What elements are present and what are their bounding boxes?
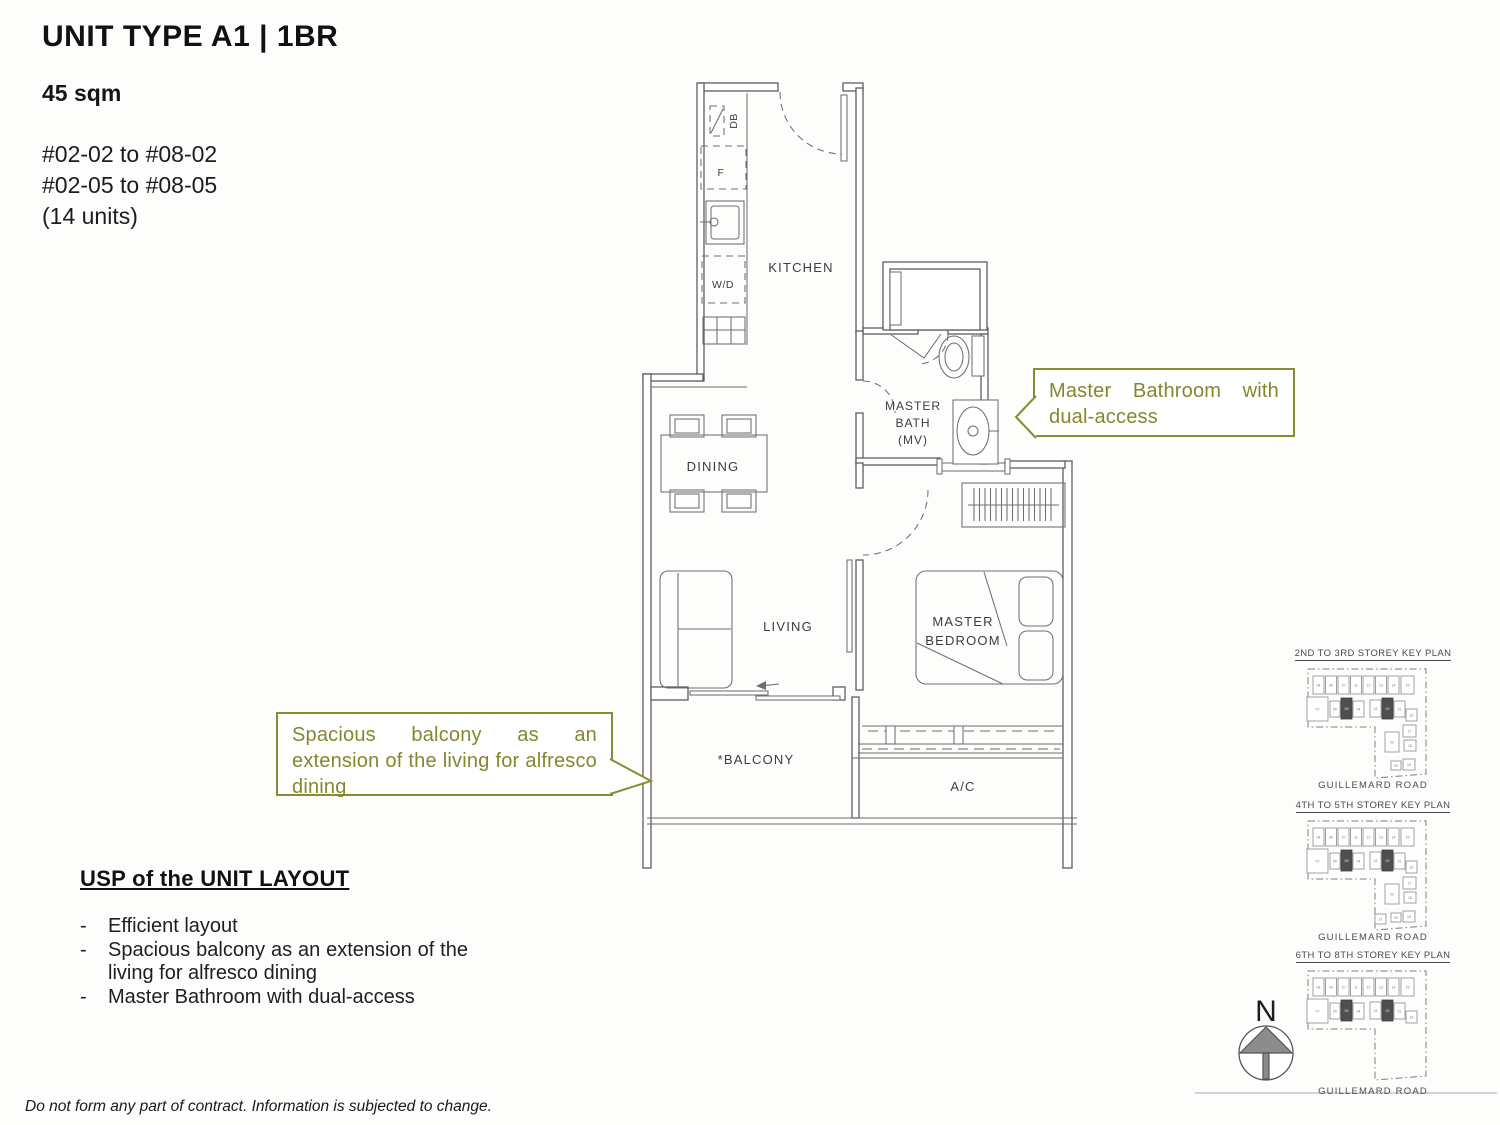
keyplan-unit-number: 14 bbox=[1392, 683, 1396, 687]
ac-label: A/C bbox=[950, 779, 975, 794]
keyplan-unit-number: 03 bbox=[1374, 1009, 1378, 1013]
page-title: UNIT TYPE A1 | 1BR bbox=[42, 20, 338, 54]
keyplan-unit-number: 05 bbox=[1345, 707, 1349, 711]
fridge-label: F bbox=[718, 167, 725, 179]
keyplan-map: 0809101112131415070605040302011617182220… bbox=[1293, 664, 1453, 779]
db-label: DB bbox=[728, 113, 740, 129]
keyplan-unit-number: 08 bbox=[1317, 835, 1321, 839]
usp-item-text: Master Bathroom with dual-access bbox=[108, 986, 468, 1009]
sliding-door-icon bbox=[690, 681, 840, 700]
keyplan-unit-number: 16 bbox=[1410, 1015, 1414, 1019]
keyplan-unit-number: 06 bbox=[1333, 859, 1337, 863]
sofa-icon bbox=[660, 571, 732, 688]
usp-item: - Efficient layout bbox=[80, 915, 480, 938]
keyplan-unit-number: 09 bbox=[1329, 835, 1333, 839]
keyplan-unit-number: 16 bbox=[1410, 713, 1414, 717]
callout-pointer-left-icon bbox=[1013, 395, 1037, 439]
keyplan-unit-number: 19 bbox=[1407, 763, 1411, 767]
keyplan-unit-number: 02 bbox=[1386, 1009, 1390, 1013]
keyplan-4th-5th-storey: 4TH TO 5TH STOREY KEY PLAN 0809101112131… bbox=[1273, 795, 1473, 943]
keyplan-unit-number: 06 bbox=[1333, 707, 1337, 711]
keyplan-unit-number: 12 bbox=[1367, 985, 1371, 989]
keyplan-2nd-3rd-storey: 2ND TO 3RD STOREY KEY PLAN 0809101112131… bbox=[1273, 643, 1473, 791]
keyplan-unit-number: 17 bbox=[1408, 881, 1412, 885]
keyplan-unit-number: 03 bbox=[1374, 707, 1378, 711]
keyplan-unit-number: 12 bbox=[1367, 835, 1371, 839]
living-label: LIVING bbox=[763, 619, 813, 634]
keyplan-unit-number: 04 bbox=[1357, 859, 1361, 863]
keyplan-unit-number: 10 bbox=[1342, 683, 1346, 687]
road-label: GUILLEMARD ROAD bbox=[1273, 1086, 1473, 1097]
keyplan-unit-number: 13 bbox=[1379, 835, 1383, 839]
slide-page: KITCHEN DINING LIVING *BALCONY A/C MASTE… bbox=[0, 0, 1500, 1125]
callout-master-bathroom: Master Bathroom with dual-access bbox=[1033, 368, 1295, 437]
keyplan-unit-number: 02 bbox=[1386, 859, 1390, 863]
master-bedroom-label-1: MASTER bbox=[932, 614, 993, 629]
usp-item: - Spacious balcony as an extension of th… bbox=[80, 939, 480, 985]
keyplan-unit-number: 11 bbox=[1354, 835, 1358, 839]
keyplan-unit-number: 14 bbox=[1392, 835, 1396, 839]
keyplan-unit-number: 16 bbox=[1410, 865, 1414, 869]
keyplan-unit-number: 04 bbox=[1357, 707, 1361, 711]
stack-line: (14 units) bbox=[42, 201, 217, 232]
keyplan-unit-number: 05 bbox=[1345, 859, 1349, 863]
keyplan-unit-number: 04 bbox=[1357, 1009, 1361, 1013]
unit-stack-list: #02-02 to #08-02 #02-05 to #08-05 (14 un… bbox=[42, 139, 217, 232]
washer-dryer-label: W/D bbox=[712, 279, 734, 291]
keyplan-unit-number: 01 bbox=[1398, 1009, 1402, 1013]
keyplan-unit-number: 01 bbox=[1398, 707, 1402, 711]
keyplan-unit-number: 14 bbox=[1392, 985, 1396, 989]
keyplan-map: 0809101112131415070605040302011617182221… bbox=[1293, 816, 1453, 931]
keyplan-unit-number: 15 bbox=[1406, 835, 1410, 839]
usp-heading: USP of the UNIT LAYOUT bbox=[80, 866, 349, 892]
keyplan-unit-number: 21 bbox=[1379, 917, 1383, 921]
road-label: GUILLEMARD ROAD bbox=[1273, 932, 1473, 943]
toilet-icon bbox=[939, 336, 984, 378]
keyplan-unit-number: 18 bbox=[1408, 744, 1412, 748]
keyplan-unit-number: 15 bbox=[1406, 683, 1410, 687]
bullet-dash: - bbox=[80, 986, 108, 1009]
keyplan-unit-number: 11 bbox=[1354, 985, 1358, 989]
master-bath-label-2: BATH bbox=[895, 416, 930, 430]
keyplan-unit-number: 11 bbox=[1354, 683, 1358, 687]
keyplan-unit-number: 07 bbox=[1316, 859, 1320, 863]
keyplan-unit-number: 02 bbox=[1386, 707, 1390, 711]
master-bedroom-label-2: BEDROOM bbox=[925, 633, 1001, 648]
keyplan-unit-number: 22 bbox=[1390, 740, 1394, 744]
keyplan-unit-number: 12 bbox=[1367, 683, 1371, 687]
keyplan-unit-number: 20 bbox=[1394, 764, 1398, 768]
keyplan-unit-number: 18 bbox=[1408, 896, 1412, 900]
bullet-dash: - bbox=[80, 915, 108, 938]
keyplan-unit-number: 07 bbox=[1316, 707, 1320, 711]
unit-area: 45 sqm bbox=[42, 80, 121, 107]
keyplan-6th-8th-storey: 6TH TO 8TH STOREY KEY PLAN 0809101112131… bbox=[1273, 945, 1473, 1097]
usp-list: - Efficient layout - Spacious balcony as… bbox=[80, 915, 480, 1010]
keyplan-unit-number: 20 bbox=[1394, 916, 1398, 920]
keyplan-unit-number: 09 bbox=[1329, 683, 1333, 687]
keyplan-title: 4TH TO 5TH STOREY KEY PLAN bbox=[1296, 800, 1451, 813]
keyplan-unit-number: 07 bbox=[1316, 1009, 1320, 1013]
keyplan-unit-number: 13 bbox=[1379, 985, 1383, 989]
keyplan-unit-number: 05 bbox=[1345, 1009, 1349, 1013]
dining-label: DINING bbox=[687, 459, 740, 474]
keyplan-unit-number: 01 bbox=[1398, 859, 1402, 863]
road-label: GUILLEMARD ROAD bbox=[1273, 780, 1473, 791]
keyplan-unit-number: 10 bbox=[1342, 985, 1346, 989]
disclaimer-text: Do not form any part of contract. Inform… bbox=[25, 1098, 492, 1116]
keyplan-unit-number: 17 bbox=[1408, 729, 1412, 733]
keyplan-unit-number: 08 bbox=[1317, 683, 1321, 687]
keyplan-unit-number: 06 bbox=[1333, 1009, 1337, 1013]
keyplan-unit-number: 03 bbox=[1374, 859, 1378, 863]
keyplan-unit-number: 22 bbox=[1390, 892, 1394, 896]
stack-line: #02-05 to #08-05 bbox=[42, 170, 217, 201]
keyplan-title: 2ND TO 3RD STOREY KEY PLAN bbox=[1295, 648, 1452, 661]
keyplan-unit-number: 10 bbox=[1342, 835, 1346, 839]
keyplan-title: 6TH TO 8TH STOREY KEY PLAN bbox=[1296, 950, 1451, 963]
entry-door-icon bbox=[780, 92, 847, 161]
callout-spacious-balcony-text: Spacious balcony as an extension of the … bbox=[292, 724, 597, 798]
usp-item-text: Efficient layout bbox=[108, 915, 468, 938]
vanity-sink-icon bbox=[953, 400, 999, 464]
keyplan-unit-number: 13 bbox=[1379, 683, 1383, 687]
stack-line: #02-02 to #08-02 bbox=[42, 139, 217, 170]
callout-spacious-balcony: Spacious balcony as an extension of the … bbox=[276, 712, 613, 796]
kitchen-fixtures bbox=[700, 106, 746, 344]
wardrobe-icon bbox=[962, 483, 1065, 527]
kitchen-label: KITCHEN bbox=[768, 260, 833, 275]
keyplan-map: 08091011121314150706050403020116 bbox=[1293, 966, 1453, 1081]
bullet-dash: - bbox=[80, 939, 108, 985]
keyplan-unit-number: 08 bbox=[1317, 985, 1321, 989]
balcony-label: *BALCONY bbox=[718, 752, 795, 767]
keyplan-unit-number: 09 bbox=[1329, 985, 1333, 989]
master-bath-label-3: (MV) bbox=[898, 433, 928, 447]
keyplan-unit-number: 15 bbox=[1406, 985, 1410, 989]
keyplan-unit-number: 19 bbox=[1407, 915, 1411, 919]
usp-item: - Master Bathroom with dual-access bbox=[80, 986, 480, 1009]
ac-ledge-alcove bbox=[883, 262, 987, 330]
master-bath-label-1: MASTER bbox=[885, 399, 941, 413]
callout-pointer-right-icon bbox=[609, 758, 653, 796]
callout-master-bathroom-text: Master Bathroom with dual-access bbox=[1049, 380, 1279, 428]
usp-item-text: Spacious balcony as an extension of the … bbox=[108, 939, 468, 985]
